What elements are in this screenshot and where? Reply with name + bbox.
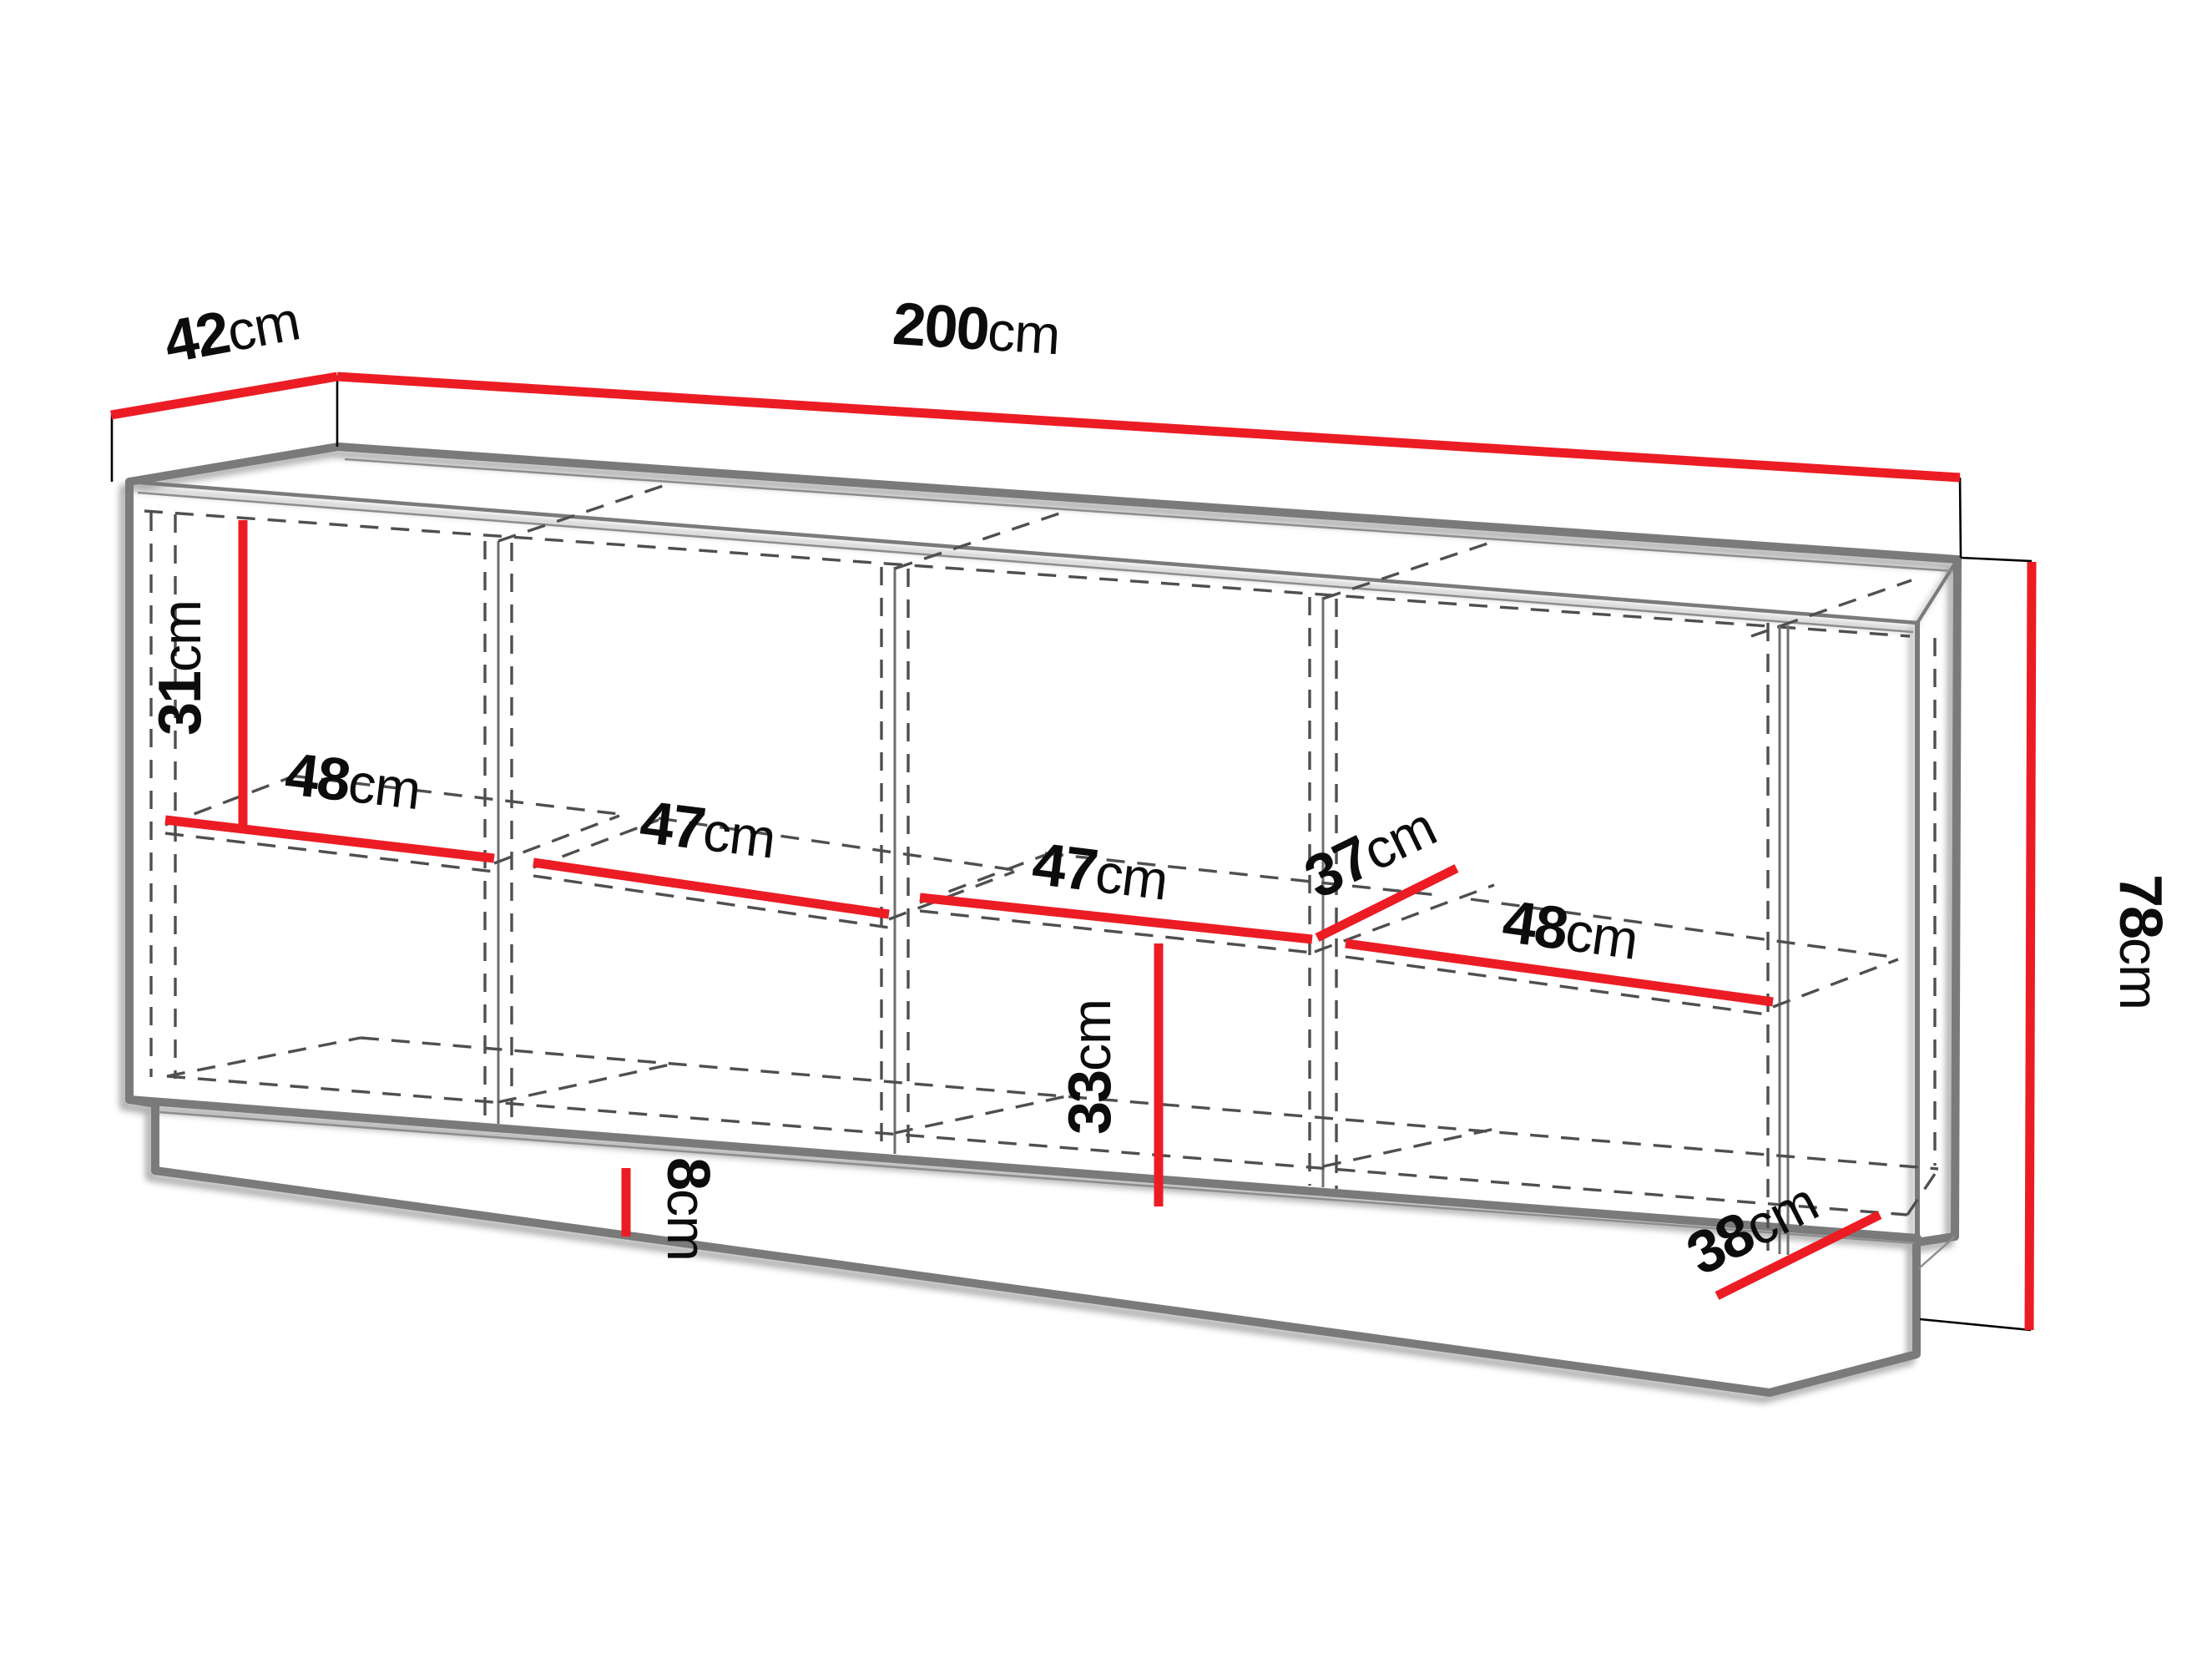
plinth-outline <box>129 1100 1917 1393</box>
cabinet-right-edge <box>1955 559 1957 1237</box>
cabinet-top-left-depth-edge <box>129 447 338 482</box>
cabinet-outline <box>129 447 1957 1393</box>
dimension-label-47cm-first: 47cm <box>637 789 780 872</box>
furniture-dimension-diagram: 42cm 200cm 78cm 31cm 48cm 47cm 47cm 37cm… <box>0 0 2212 1659</box>
dimension-label-8cm: 8cm <box>654 1157 721 1261</box>
dimension-label-47cm-second: 47cm <box>1029 831 1172 913</box>
dimension-label-33cm: 33cm <box>1057 999 1124 1135</box>
dimension-label-31cm: 31cm <box>147 600 214 736</box>
dimension-label-48cm-right: 48cm <box>1499 888 1642 973</box>
dimension-label-200cm: 200cm <box>891 291 1062 367</box>
dim-line-78cm <box>2029 562 2032 1330</box>
dimension-label-78cm: 78cm <box>2107 874 2174 1009</box>
cabinet-bottom-front-edge <box>129 1100 1917 1238</box>
dim-line-47cm-first <box>533 862 889 914</box>
cabinet-top-front-edge <box>129 482 1917 623</box>
interior-ceiling-line <box>144 511 1910 636</box>
dimension-label-42cm: 42cm <box>159 286 305 376</box>
dimension-label-48cm-left: 48cm <box>282 741 424 822</box>
sideboard-diagram-canvas: 42cm 200cm 78cm 31cm 48cm 47cm 47cm 37cm… <box>0 0 2212 1659</box>
dimension-label-38cm: 38cm <box>1677 1167 1828 1288</box>
dim-line-42cm <box>111 377 337 415</box>
partition-1 <box>485 484 668 1125</box>
